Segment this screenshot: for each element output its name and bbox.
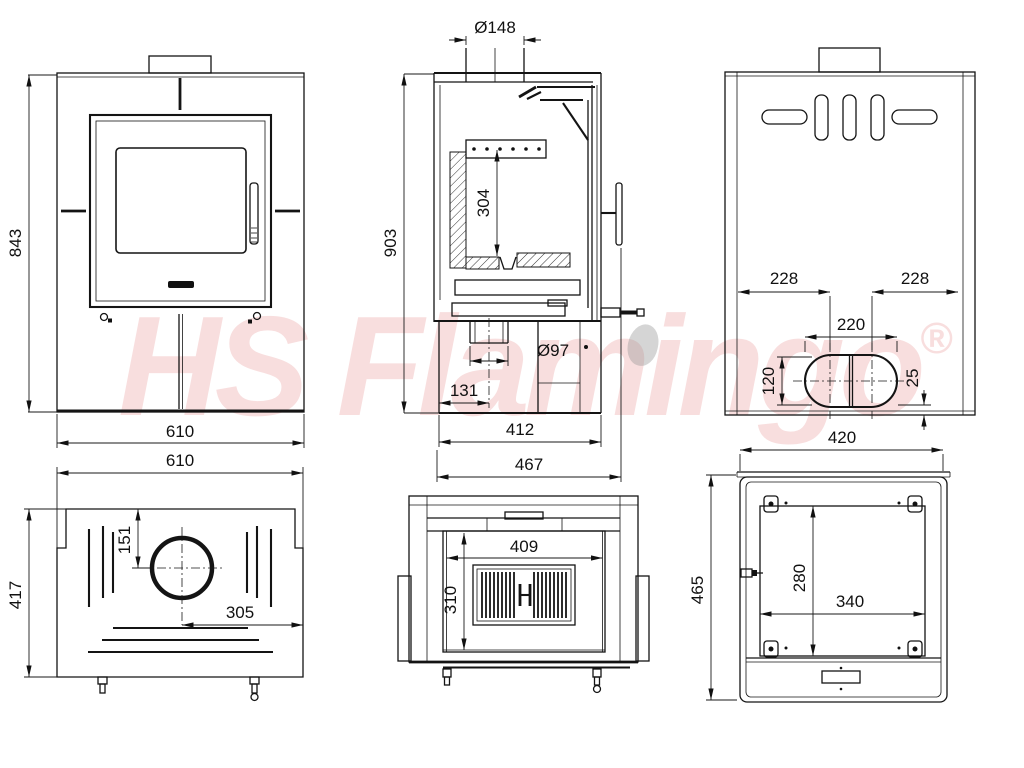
bottom-outline (740, 477, 947, 702)
dim-label-body-depth: 412 (506, 420, 534, 439)
dim-label-flue-offset-front: 151 (115, 526, 134, 554)
foot-left (98, 677, 107, 684)
dim-rear-offset-left: 228 (738, 269, 830, 350)
dim-bottom-depth: 465 (688, 475, 737, 700)
section-door-handle (616, 183, 622, 245)
dim-label-base-depth: 280 (790, 564, 809, 592)
firebox-view: 409 310 (398, 496, 649, 693)
vent-slot-v3 (871, 95, 884, 140)
dim-front-height: 843 (6, 75, 57, 412)
dim-top-width: 610 (57, 451, 303, 549)
dim-label-firebox-height: 304 (474, 189, 493, 217)
stove-door (90, 115, 271, 324)
dim-total-height: 903 (381, 74, 439, 413)
dim-label-top-depth: 417 (6, 581, 25, 609)
stove-technical-drawing: HS Flamingo® (0, 0, 1024, 768)
dim-base-depth: 280 (790, 506, 813, 656)
dim-label-total-height: 903 (381, 229, 400, 257)
perforated-baffle (466, 140, 546, 158)
firebrick-back-wall (450, 152, 466, 268)
dim-outlet-diameter: Ø97 (470, 341, 569, 366)
dim-body-depth: 412 (439, 415, 601, 447)
door-latch (601, 308, 620, 317)
dim-label-bottom-depth: 465 (688, 576, 707, 604)
dim-label-outlet-offset: 131 (450, 381, 478, 400)
bottom-view: 420 (688, 428, 950, 702)
dim-label-total-depth: 467 (515, 455, 543, 474)
flue-collar (149, 56, 211, 73)
side-latch (741, 569, 752, 577)
ash-drawer-handle (822, 671, 860, 683)
dim-label-flue-diameter: Ø148 (474, 18, 516, 37)
grate-gap (500, 257, 516, 269)
dim-label-outlet-width: 220 (837, 315, 865, 334)
door-glass (116, 148, 246, 253)
dim-label-front-width: 610 (166, 422, 194, 441)
air-guide (563, 103, 588, 140)
dim-total-depth: 467 (437, 248, 621, 482)
dim-label-outlet-height: 120 (759, 367, 778, 395)
dim-label-opening-width: 409 (510, 537, 538, 556)
rear-body (725, 48, 975, 419)
dim-outlet-offset: 131 (439, 381, 489, 403)
firebox-floor-right (517, 253, 570, 267)
dim-outlet-width: 220 (805, 315, 897, 352)
firebox-floor-left (466, 257, 499, 269)
dim-label-base-width: 340 (836, 592, 864, 611)
dim-opening-width: 409 (447, 537, 603, 558)
vent-slot-left (762, 110, 807, 124)
top-body (57, 509, 303, 701)
hinge-right (254, 313, 261, 320)
foot-right (250, 677, 259, 684)
dim-flue-diameter: Ø148 (449, 18, 541, 45)
dim-rear-offset-right: 228 (872, 269, 958, 350)
dim-firebox-height: 304 (474, 150, 497, 256)
dim-label-outlet-bottom-offset: 25 (903, 369, 922, 388)
dim-flue-offset-front: 151 (115, 509, 150, 568)
vent-slot-right (892, 110, 937, 124)
vent-slot-v2 (843, 95, 856, 140)
hinge-left (101, 314, 108, 321)
door-handle (250, 183, 258, 244)
dim-label-rear-offset-left: 228 (770, 269, 798, 288)
vent-slot-v1 (815, 95, 828, 140)
front-body (57, 56, 304, 412)
dim-front-width: 610 (57, 414, 304, 448)
dim-label-outlet-diameter: Ø97 (537, 341, 569, 360)
dim-bottom-width: 420 (740, 428, 943, 471)
dim-label-rear-offset-right: 228 (901, 269, 929, 288)
rear-flue-box (819, 48, 880, 72)
dim-label-front-height: 843 (6, 229, 25, 257)
base-plate (760, 506, 925, 656)
rear-view: 228 228 220 120 (725, 48, 975, 430)
dim-flue-offset-side: 305 (182, 603, 303, 625)
dim-label-flue-offset-side: 305 (226, 603, 254, 622)
bottom-body (737, 472, 950, 702)
dim-outlet-bottom-offset: 25 (898, 369, 931, 430)
drawing-sheet: 843 610 (0, 0, 1024, 768)
firebox-foot-right (593, 669, 601, 677)
door-logo (168, 281, 194, 288)
dim-opening-height: 310 (441, 533, 464, 650)
dim-label-bottom-width: 420 (828, 428, 856, 447)
dim-label-top-width: 610 (166, 451, 194, 470)
dim-label-opening-height: 310 (441, 586, 460, 614)
dim-base-width: 340 (760, 592, 925, 614)
front-view: 843 610 (6, 56, 304, 448)
top-view: 610 (6, 451, 303, 701)
fire-grate (473, 565, 575, 625)
firebox-foot-left (443, 669, 451, 677)
door-outline (90, 115, 271, 307)
section-view: Ø148 903 304 Ø97 131 (381, 18, 644, 482)
ash-pan (455, 280, 580, 295)
front-body-outline (57, 73, 304, 412)
